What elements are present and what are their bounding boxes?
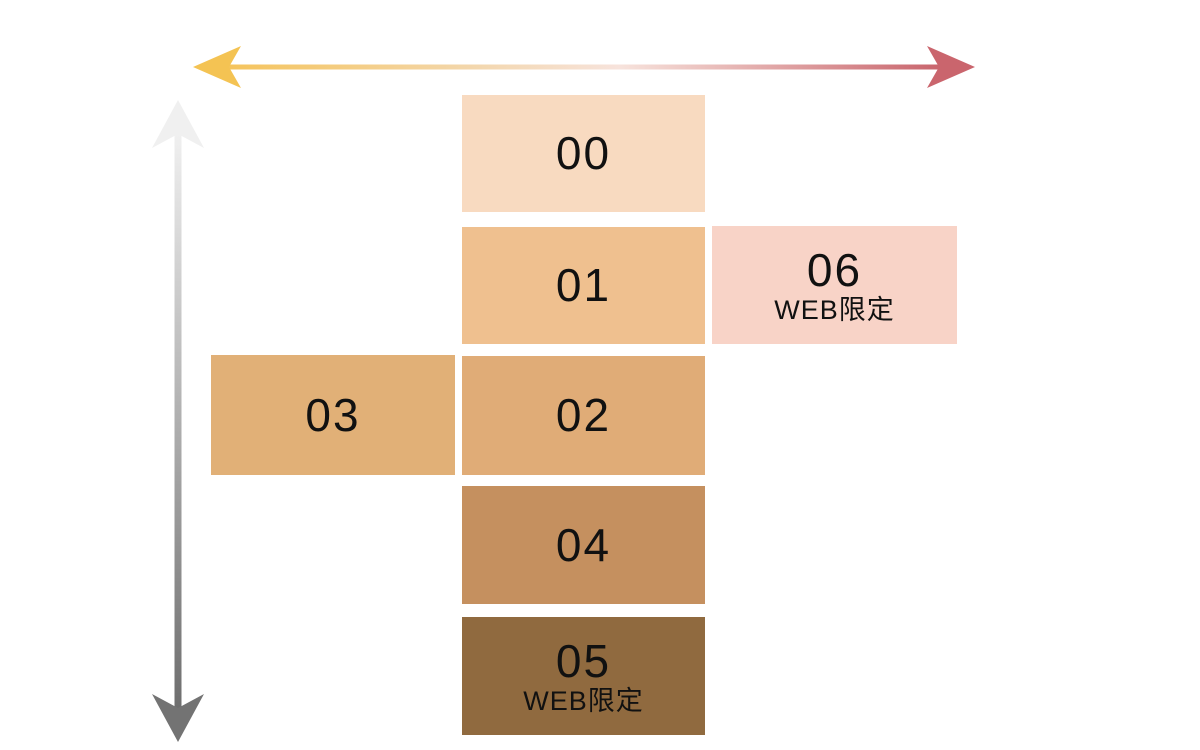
horizontal-tone-axis-arrow: [185, 44, 980, 92]
shade-swatch-06: 06 WEB限定: [712, 226, 957, 344]
shade-swatch-05: 05 WEB限定: [462, 617, 705, 735]
shade-swatch-02: 02: [462, 356, 705, 475]
horizontal-axis-shaft: [229, 65, 939, 70]
shade-code: 05: [556, 637, 611, 685]
shade-note-web-limited: WEB限定: [523, 687, 644, 715]
shade-code: 02: [556, 391, 611, 439]
shade-map-diagram: 00 01 06 WEB限定 03 02 04 05 WEB限定: [0, 0, 1200, 750]
shade-code: 01: [556, 261, 611, 309]
vertical-brightness-axis-arrow: [150, 96, 206, 746]
shade-swatch-03: 03: [211, 355, 455, 475]
shade-code: 00: [556, 129, 611, 177]
shade-swatch-00: 00: [462, 95, 705, 212]
vertical-axis-shaft: [175, 134, 182, 708]
shade-note-web-limited: WEB限定: [774, 296, 895, 324]
shade-code: 04: [556, 521, 611, 569]
shade-swatch-04: 04: [462, 486, 705, 604]
shade-code: 06: [807, 246, 862, 294]
shade-swatch-01: 01: [462, 227, 705, 344]
shade-code: 03: [305, 391, 360, 439]
